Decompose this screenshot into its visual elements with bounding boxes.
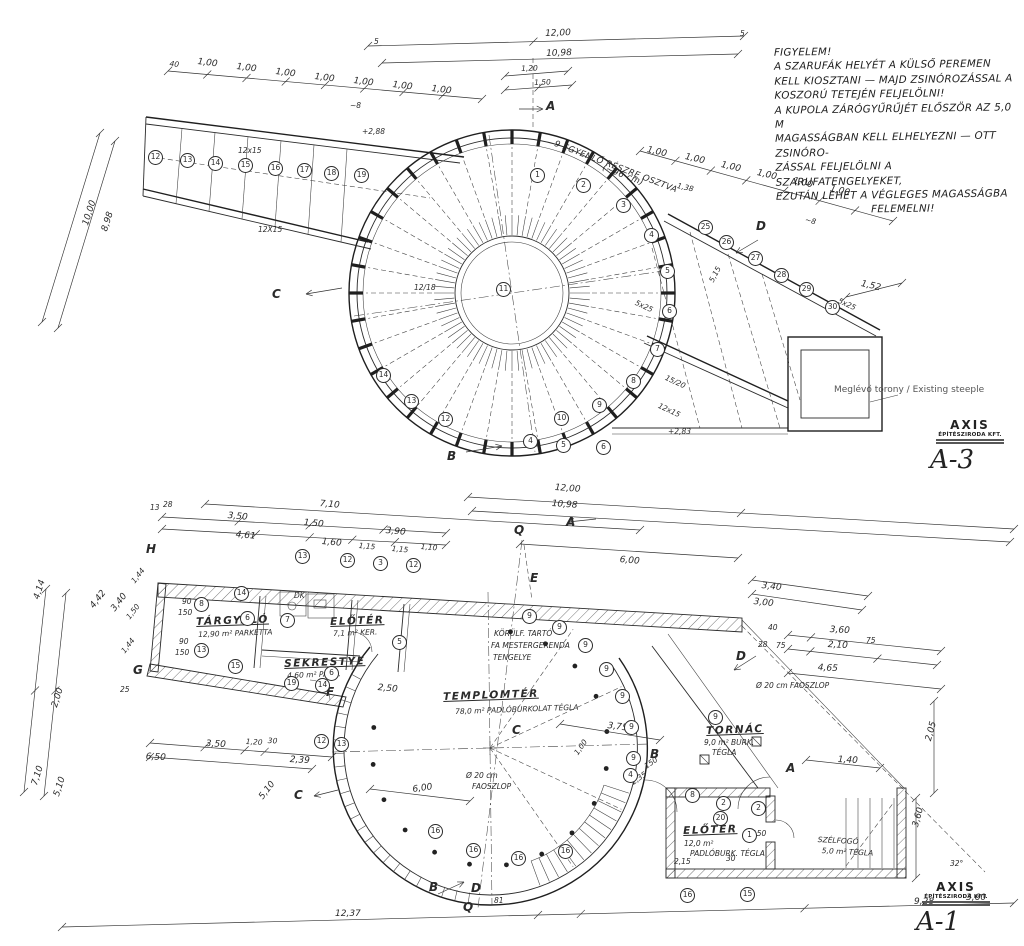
firm-subtitle: ÉPÍTÉSZIRODA KFT. bbox=[908, 894, 1004, 900]
firm-subtitle: ÉPÍTÉSZIRODA KFT. bbox=[922, 432, 1018, 438]
handwritten-note: FIGYELEM!A SZARUFÁK HELYÉT A KÜLSŐ PEREM… bbox=[774, 42, 1022, 218]
bottom-plan-generated bbox=[333, 629, 894, 903]
sheet-number: A-3 bbox=[922, 445, 1018, 475]
handwritten-note-line: A KUPOLA ZÁRÓGYŰRŰJÉT ELŐSZÖR AZ 5,0 M bbox=[775, 100, 1021, 132]
firm-name: AXIS bbox=[922, 418, 1018, 432]
titleblock-a3: AXIS ÉPÍTÉSZIRODA KFT. A-3 bbox=[922, 418, 1018, 475]
handwritten-note-line: ZÁSSAL FELJELÖLNI A SZARUFATENGELYEKET, bbox=[775, 158, 1021, 190]
sheet-number: A-1 bbox=[908, 907, 1004, 937]
firm-address-redacted bbox=[936, 442, 1004, 444]
firm-address-redacted bbox=[922, 904, 990, 906]
handwritten-note-line: MAGASSÁGBAN KELL ELHELYEZNI — OTT ZSINÓR… bbox=[775, 129, 1021, 161]
firm-address-redacted bbox=[922, 901, 990, 903]
firm-name: AXIS bbox=[908, 880, 1004, 894]
blueprint-canvas: 12,0010,981,201,5055A401,001,001,001,001… bbox=[0, 0, 1024, 946]
top-plan-generated bbox=[176, 128, 675, 456]
titleblock-a1: AXIS ÉPÍTÉSZIRODA KFT. A-1 bbox=[908, 880, 1004, 937]
firm-address-redacted bbox=[936, 439, 1004, 441]
